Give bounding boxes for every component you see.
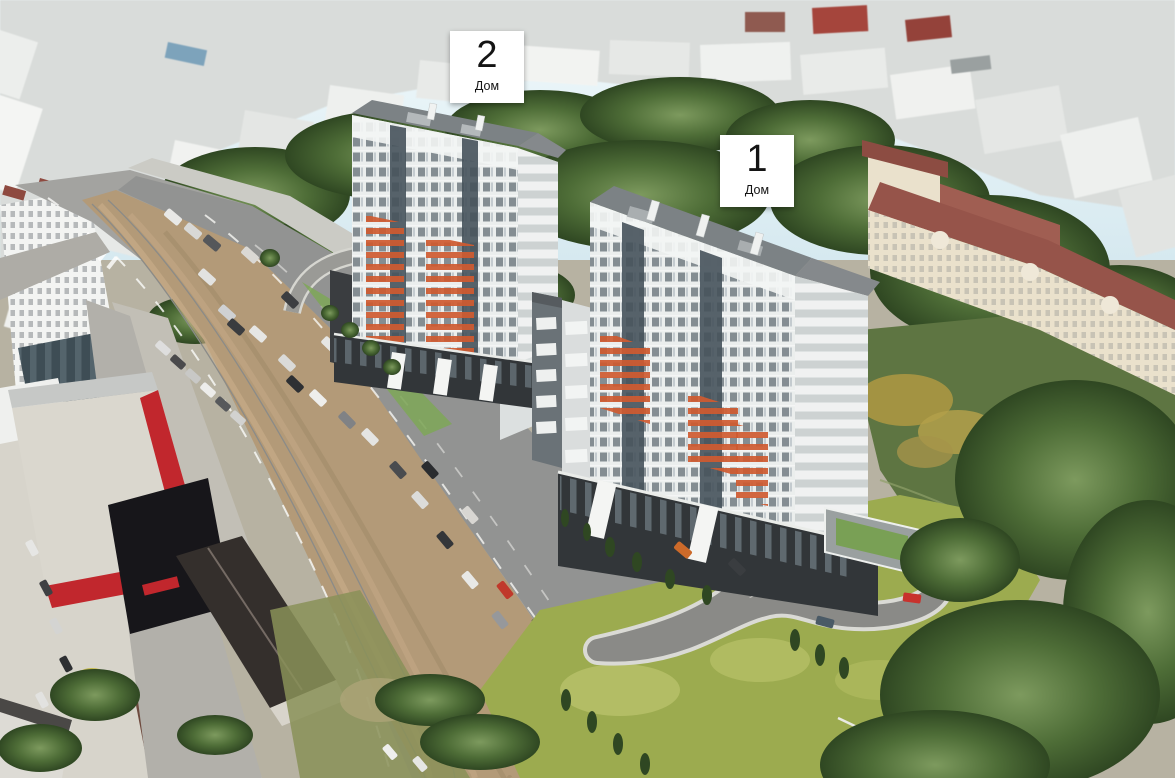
conifer-tree xyxy=(605,537,615,557)
label-building-2-caption: Дом xyxy=(475,79,499,93)
city-block-red-roof xyxy=(905,15,952,42)
building-1-glass-core xyxy=(700,250,722,538)
tree-mass xyxy=(50,669,140,721)
conifer-tree xyxy=(561,509,569,527)
car xyxy=(214,396,231,413)
building-2-orange-stripes xyxy=(366,215,404,350)
label-building-2-number: 2 xyxy=(476,34,497,76)
building-1-orange-stripes xyxy=(736,424,768,506)
lawn-patch xyxy=(560,664,680,716)
street-tree xyxy=(260,249,280,267)
annex-balcony xyxy=(565,321,588,335)
aerial-scene: 2 Дом 1 Дом xyxy=(0,0,1175,778)
conifer-tree xyxy=(613,733,623,755)
wing-balcony xyxy=(536,395,557,408)
conifer-tree xyxy=(587,711,597,733)
annex-balcony xyxy=(565,449,588,463)
dry-grass-patch xyxy=(897,436,953,468)
wing-balcony xyxy=(536,421,557,434)
conifer-tree xyxy=(702,585,712,605)
tree-mass xyxy=(177,715,253,755)
label-building-1: 1 Дом xyxy=(720,135,794,207)
annex-balcony xyxy=(565,385,588,399)
label-building-1-number: 1 xyxy=(746,138,767,180)
annex-balcony xyxy=(565,353,588,367)
classical-dormer xyxy=(1021,263,1039,281)
wing-balcony xyxy=(536,369,557,382)
conifer-tree xyxy=(561,689,571,711)
conifer-tree xyxy=(640,753,650,775)
classical-dormer xyxy=(931,231,949,249)
street-tree xyxy=(383,359,401,375)
annex-balcony xyxy=(565,417,588,431)
conifer-tree xyxy=(665,569,675,589)
street-tree xyxy=(341,322,359,338)
building-2-orange-stripes xyxy=(426,235,474,356)
city-block xyxy=(800,48,888,95)
city-block xyxy=(700,42,791,83)
city-block-red-roof xyxy=(812,5,868,34)
label-building-2: 2 Дом xyxy=(450,31,524,103)
label-building-1-caption: Дом xyxy=(745,183,769,197)
conifer-tree xyxy=(632,552,642,572)
wing-balcony xyxy=(536,317,557,330)
classical-dormer xyxy=(1101,296,1119,314)
street-tree xyxy=(321,305,339,321)
aerial-artwork xyxy=(0,0,1175,778)
tree-mass xyxy=(420,714,540,770)
connecting-wing xyxy=(532,292,562,468)
conifer-tree xyxy=(790,629,800,651)
tree-mass xyxy=(0,724,82,772)
conifer-tree xyxy=(815,644,825,666)
wing-balcony xyxy=(536,343,557,356)
city-block-red-roof xyxy=(745,12,785,32)
street-tree xyxy=(362,340,380,356)
tree-mass xyxy=(900,518,1020,602)
city-block xyxy=(609,40,690,77)
conifer-tree xyxy=(583,523,591,541)
conifer-tree xyxy=(839,657,849,679)
city-block xyxy=(513,45,600,86)
